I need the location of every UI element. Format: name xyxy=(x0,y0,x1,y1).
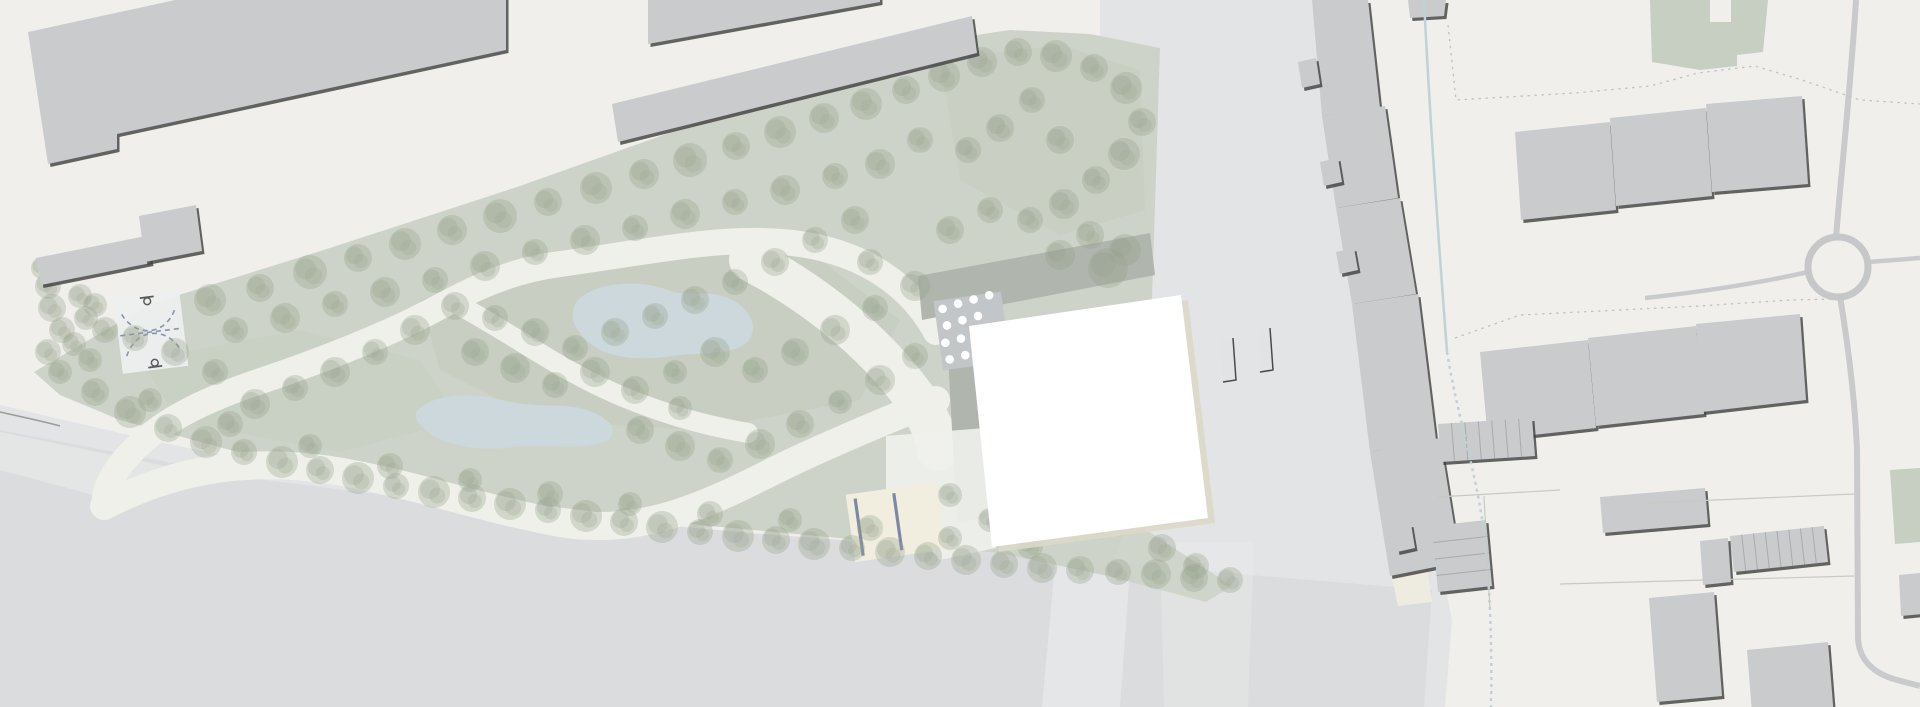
tree-canopy xyxy=(861,100,877,116)
tree xyxy=(622,215,648,241)
tree-canopy xyxy=(1056,136,1070,150)
tree xyxy=(798,528,830,560)
tree xyxy=(745,429,775,459)
tree-canopy xyxy=(316,466,330,480)
proposed-building-footprint xyxy=(969,295,1208,547)
tree xyxy=(936,216,964,244)
tree xyxy=(601,318,629,346)
tree xyxy=(778,508,802,532)
tree xyxy=(362,339,388,365)
tree-canopy xyxy=(756,440,771,455)
tree-canopy xyxy=(431,276,444,289)
tree-canopy xyxy=(1114,568,1127,581)
tree-canopy xyxy=(101,326,114,339)
tree xyxy=(1110,72,1142,104)
tree-canopy xyxy=(986,206,999,219)
tree xyxy=(802,227,828,253)
tree xyxy=(418,476,450,508)
tree-canopy xyxy=(495,211,512,228)
tree xyxy=(470,251,500,281)
tree-canopy xyxy=(466,477,478,489)
tree xyxy=(621,376,649,404)
tree xyxy=(562,335,588,361)
tree xyxy=(282,375,308,401)
tree-canopy xyxy=(886,548,901,563)
tree xyxy=(722,189,748,215)
tree xyxy=(1045,240,1075,270)
tree xyxy=(663,360,687,384)
tree-canopy xyxy=(70,341,82,353)
tree xyxy=(322,291,348,317)
tree xyxy=(1019,87,1045,113)
tree xyxy=(194,284,226,316)
tree xyxy=(78,348,102,372)
tree xyxy=(580,172,612,204)
tree-canopy xyxy=(620,518,634,532)
tree xyxy=(1066,556,1094,584)
tree xyxy=(668,396,692,420)
tree-canopy xyxy=(781,186,796,201)
tree-canopy xyxy=(531,248,544,261)
tree-canopy xyxy=(996,124,1010,138)
building xyxy=(1706,96,1808,192)
tree-canopy xyxy=(86,357,98,369)
tree xyxy=(1080,54,1108,82)
tree xyxy=(1076,221,1104,249)
tree xyxy=(320,357,350,387)
tree-canopy xyxy=(1000,560,1014,574)
tree-canopy xyxy=(1192,562,1205,575)
tree xyxy=(781,338,809,366)
tree xyxy=(1183,553,1209,579)
tree-canopy xyxy=(651,312,664,325)
building xyxy=(1696,314,1806,412)
tree xyxy=(865,365,895,395)
tree-canopy xyxy=(171,348,185,362)
tree-canopy xyxy=(531,328,545,342)
tree xyxy=(902,343,928,369)
tree-canopy xyxy=(306,443,318,455)
tree-canopy xyxy=(946,535,958,547)
tree-canopy xyxy=(1026,216,1039,229)
tree xyxy=(500,353,530,383)
tree-canopy xyxy=(916,136,929,149)
tree-canopy xyxy=(546,490,559,503)
proposed-building-layer xyxy=(969,295,1215,552)
tree-canopy xyxy=(775,128,791,144)
tree xyxy=(1141,559,1171,589)
building xyxy=(1515,122,1616,220)
tree xyxy=(190,426,222,458)
tree-canopy xyxy=(820,114,835,129)
tree xyxy=(344,244,372,272)
building xyxy=(1610,108,1712,206)
tree xyxy=(707,447,733,473)
building xyxy=(1899,573,1920,616)
tree-canopy xyxy=(676,442,691,457)
tree xyxy=(48,360,72,384)
tree xyxy=(839,535,865,561)
tree xyxy=(700,337,730,367)
tree xyxy=(154,414,182,442)
tree-canopy xyxy=(481,262,496,277)
tree-canopy xyxy=(924,552,938,566)
tree-canopy xyxy=(631,224,644,237)
tree xyxy=(1148,534,1176,562)
tree-canopy xyxy=(751,366,764,379)
tree xyxy=(618,492,642,516)
tree xyxy=(138,388,162,412)
building xyxy=(1588,326,1704,426)
tree xyxy=(580,357,610,387)
tree xyxy=(646,511,678,543)
tree xyxy=(722,520,754,552)
tree-canopy xyxy=(1014,48,1028,62)
tree xyxy=(570,500,602,532)
tree xyxy=(1128,108,1156,136)
building xyxy=(1408,0,1446,18)
tree xyxy=(306,456,334,484)
tree-canopy xyxy=(1060,200,1075,215)
tree xyxy=(537,481,563,507)
tree-canopy xyxy=(91,302,103,314)
tree-canopy xyxy=(1056,251,1071,266)
tree-canopy xyxy=(939,72,955,88)
tree-canopy xyxy=(732,142,746,156)
building xyxy=(1747,642,1835,707)
tree-canopy xyxy=(211,368,224,381)
building-annex xyxy=(1393,524,1415,552)
tree-canopy xyxy=(125,408,141,424)
tree xyxy=(298,434,322,458)
tree xyxy=(534,188,562,216)
tree-canopy xyxy=(256,284,270,298)
tree xyxy=(494,488,526,520)
tree xyxy=(482,305,508,331)
tree xyxy=(850,88,882,120)
tree xyxy=(441,292,469,320)
tree-canopy xyxy=(791,348,805,362)
tree xyxy=(458,468,482,492)
tree-canopy xyxy=(681,210,696,225)
tree xyxy=(522,239,548,265)
tree xyxy=(92,317,118,343)
tree xyxy=(521,318,549,346)
tree xyxy=(697,501,723,527)
tree xyxy=(820,315,850,345)
tree xyxy=(1217,567,1243,593)
tree-canopy xyxy=(1092,176,1106,190)
tree-canopy xyxy=(671,369,683,381)
tree xyxy=(461,338,489,366)
tree-canopy xyxy=(91,388,105,402)
building-annex xyxy=(1320,158,1342,186)
tree-canopy xyxy=(353,474,369,490)
tree-canopy xyxy=(711,348,726,363)
tree xyxy=(673,143,707,177)
tree-canopy xyxy=(1051,52,1067,68)
tree-canopy xyxy=(946,492,958,504)
tree xyxy=(764,116,796,148)
tree-canopy xyxy=(1038,564,1053,579)
tree-canopy xyxy=(786,517,798,529)
tree xyxy=(1046,126,1074,154)
tree xyxy=(938,526,962,550)
tree-canopy xyxy=(876,160,891,175)
tree-canopy xyxy=(56,369,68,381)
tree-canopy xyxy=(571,344,584,357)
tree-canopy xyxy=(831,326,846,341)
tree-canopy xyxy=(491,314,504,327)
tree-canopy xyxy=(911,352,924,365)
tree-canopy xyxy=(1138,118,1152,132)
tree xyxy=(986,114,1014,142)
tree xyxy=(483,199,517,233)
tree-canopy xyxy=(451,302,465,316)
tree-canopy xyxy=(581,236,596,251)
tree-canopy xyxy=(636,426,650,440)
tree-canopy xyxy=(691,296,705,310)
tree-canopy xyxy=(411,326,426,341)
tree-canopy xyxy=(696,528,709,541)
tree xyxy=(266,446,298,478)
tree-canopy xyxy=(505,500,521,516)
tree xyxy=(665,431,695,461)
tree-canopy xyxy=(471,348,485,362)
tree xyxy=(370,277,400,307)
tree-canopy xyxy=(44,348,57,361)
tree-canopy xyxy=(381,288,396,303)
tree-canopy xyxy=(331,300,344,313)
tree xyxy=(990,550,1018,578)
tree-canopy xyxy=(331,368,346,383)
tree-canopy xyxy=(876,376,891,391)
tree-canopy xyxy=(611,328,625,342)
tree-canopy xyxy=(809,540,825,556)
tree-canopy xyxy=(1102,262,1122,282)
tree xyxy=(857,515,883,541)
tree-canopy xyxy=(551,381,564,394)
tree xyxy=(1109,234,1141,266)
tree-canopy xyxy=(131,334,144,347)
tree-canopy xyxy=(731,198,744,211)
tree-canopy xyxy=(1028,96,1041,109)
tree-canopy xyxy=(281,314,296,329)
tree xyxy=(742,357,768,383)
tree-canopy xyxy=(544,198,558,212)
tree-canopy xyxy=(902,86,916,100)
tree-canopy xyxy=(772,536,786,550)
tree xyxy=(822,163,848,189)
tree-canopy xyxy=(581,512,597,528)
tree-canopy xyxy=(400,240,416,256)
tree-canopy xyxy=(851,216,865,230)
tree xyxy=(1082,166,1110,194)
tree-canopy xyxy=(386,462,399,475)
building xyxy=(1700,538,1731,585)
tree-canopy xyxy=(685,155,702,172)
tree-canopy xyxy=(205,296,221,312)
tree-canopy xyxy=(978,58,993,73)
tree xyxy=(570,225,600,255)
tree-canopy xyxy=(836,399,848,411)
tree xyxy=(1108,138,1140,170)
tree xyxy=(83,293,107,317)
tree xyxy=(914,542,942,570)
tree xyxy=(342,462,374,494)
tree-canopy xyxy=(164,424,178,438)
tree-canopy xyxy=(962,556,977,571)
tree xyxy=(1105,559,1131,585)
tree-canopy xyxy=(640,170,655,185)
tree-canopy xyxy=(277,458,293,474)
tree xyxy=(722,269,748,295)
tree-canopy xyxy=(251,400,266,415)
tree-canopy xyxy=(706,510,719,523)
tree xyxy=(400,315,430,345)
tree-canopy xyxy=(911,282,926,297)
tree xyxy=(761,248,789,276)
tree-canopy xyxy=(733,532,749,548)
tree-canopy xyxy=(544,506,557,519)
tree-canopy xyxy=(371,348,384,361)
roundabout xyxy=(1808,237,1868,297)
tree xyxy=(809,103,839,133)
tree xyxy=(542,372,568,398)
tree xyxy=(626,416,654,444)
tree xyxy=(900,271,930,301)
tree xyxy=(437,215,467,245)
tree-canopy xyxy=(429,488,445,504)
tree xyxy=(951,545,981,575)
green-patch xyxy=(1890,468,1920,544)
building-annex xyxy=(1336,248,1358,274)
tree-canopy xyxy=(1121,84,1137,100)
tree-canopy xyxy=(964,146,977,159)
tree-canopy xyxy=(871,304,884,317)
tree-canopy xyxy=(771,258,785,272)
tree-canopy xyxy=(226,420,239,433)
tree-canopy xyxy=(1076,566,1090,580)
tree xyxy=(231,439,257,465)
tree-canopy xyxy=(231,326,244,339)
tree xyxy=(865,149,895,179)
tree-canopy xyxy=(1090,64,1104,78)
tree-canopy xyxy=(866,258,879,271)
tree xyxy=(1040,40,1072,72)
tree-canopy xyxy=(1119,150,1135,166)
tree xyxy=(681,286,709,314)
building xyxy=(1649,592,1722,702)
site-plan-canvas xyxy=(0,0,1920,707)
tree xyxy=(722,132,750,160)
tree xyxy=(786,410,814,438)
tree-canopy xyxy=(1152,570,1167,585)
tree-canopy xyxy=(626,501,638,513)
tree-canopy xyxy=(591,184,607,200)
tree xyxy=(955,137,981,163)
tree xyxy=(875,537,905,567)
tree xyxy=(1017,207,1043,233)
tree-canopy xyxy=(657,523,673,539)
tree-canopy xyxy=(731,278,744,291)
tree-canopy xyxy=(448,226,463,241)
tree xyxy=(770,175,800,205)
tree xyxy=(202,359,228,385)
tree xyxy=(1049,189,1079,219)
tree xyxy=(222,317,248,343)
building-row-segment xyxy=(1312,0,1380,116)
tree xyxy=(857,249,883,275)
tree xyxy=(377,453,403,479)
tree xyxy=(389,228,421,260)
tree xyxy=(642,303,668,329)
tree-canopy xyxy=(392,482,405,495)
tree xyxy=(938,483,962,507)
tree-canopy xyxy=(946,226,960,240)
tree-canopy xyxy=(48,304,62,318)
tree-canopy xyxy=(1120,246,1136,262)
tree-canopy xyxy=(796,420,810,434)
tree xyxy=(828,390,852,414)
tree-canopy xyxy=(676,405,688,417)
tree-canopy xyxy=(291,384,304,397)
tree-canopy xyxy=(1158,544,1172,558)
tree xyxy=(841,206,869,234)
tree-canopy xyxy=(1086,231,1100,245)
tree-canopy xyxy=(591,368,606,383)
tree xyxy=(422,267,448,293)
tree-canopy xyxy=(201,438,217,454)
tree xyxy=(670,199,700,229)
tree-canopy xyxy=(831,172,844,185)
tree xyxy=(1004,38,1032,66)
tree xyxy=(161,338,189,366)
tree xyxy=(240,389,270,419)
tree xyxy=(907,127,933,153)
tree xyxy=(892,76,920,104)
tree-canopy xyxy=(305,267,322,284)
tree-canopy xyxy=(240,448,253,461)
tree-canopy xyxy=(354,254,368,268)
site-plan xyxy=(0,0,1920,707)
tree xyxy=(862,295,888,321)
tree xyxy=(629,159,659,189)
tree-canopy xyxy=(631,386,645,400)
tree xyxy=(270,303,300,333)
tree xyxy=(217,411,243,437)
tree-canopy xyxy=(811,236,824,249)
tree-canopy xyxy=(866,524,879,537)
tree-canopy xyxy=(716,456,729,469)
tree xyxy=(81,378,109,406)
tree-canopy xyxy=(146,397,158,409)
tree xyxy=(977,197,1003,223)
tree-canopy xyxy=(1226,576,1239,589)
tree-canopy xyxy=(848,544,861,557)
tree xyxy=(122,325,148,351)
tree-canopy xyxy=(511,364,526,379)
tree-canopy xyxy=(468,494,482,508)
tree xyxy=(246,274,274,302)
tree xyxy=(293,255,327,289)
